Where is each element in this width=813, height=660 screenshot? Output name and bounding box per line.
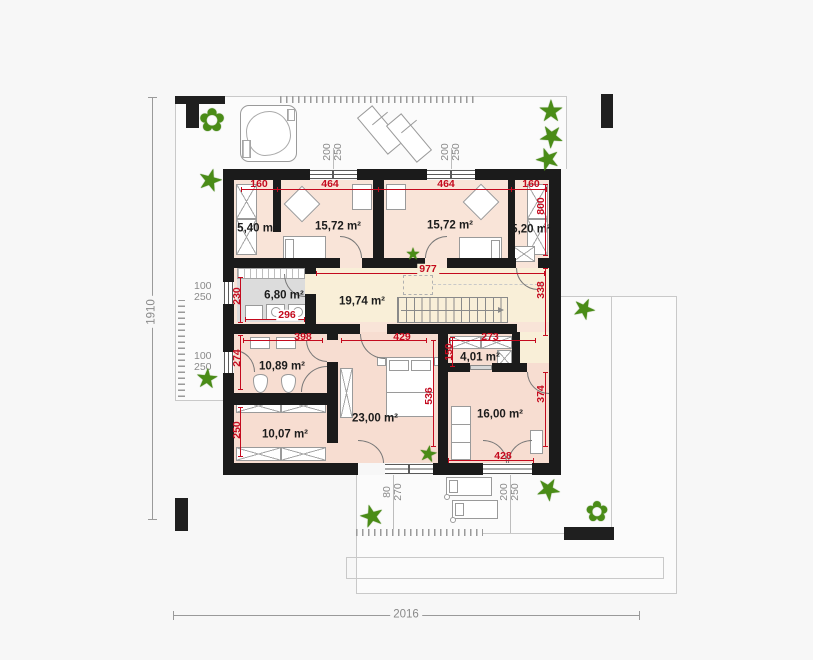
window-dim-left-1: 100 250 [194, 281, 212, 303]
wall-left-1 [223, 180, 234, 282]
wall-bottom-1 [223, 463, 358, 475]
window-bottom-mullion [408, 464, 410, 474]
dim-428: 428 [494, 451, 512, 462]
garden-pier-top-right [601, 94, 613, 128]
wall-utility-hall-top [305, 268, 316, 274]
plant-star-icon: ★ [194, 364, 220, 393]
railing-bottom-line [483, 533, 564, 534]
dim-line-800 [545, 184, 546, 256]
staircase-headroom-dashed [403, 275, 433, 295]
door-leaf-401 [470, 365, 492, 370]
hot-tub-jet [287, 109, 295, 121]
sunbed-2-pillow [455, 503, 464, 516]
window-dim-bottom-2: 200 250 [499, 483, 521, 501]
dim-line-428 [448, 460, 534, 461]
terrace-bottom-edge [356, 593, 677, 594]
wall-bedrooms-hall-1 [234, 258, 340, 268]
wall-left-2 [223, 304, 234, 352]
dim-line-374 [545, 372, 546, 447]
dim-tick [378, 187, 379, 192]
desk-1572-right [386, 184, 406, 210]
dim-464-top-left: 464 [321, 179, 339, 190]
dim-tick [511, 187, 512, 192]
dim-464-top-right: 464 [437, 179, 455, 190]
wall-bedrooms-hall-3 [447, 258, 516, 268]
plant-star-icon: ★ [405, 247, 420, 264]
bed-2300-pillow-1 [389, 360, 409, 371]
sunbed-1-pillow [449, 480, 458, 493]
room-label-540: 5,40 m² [237, 223, 277, 235]
garden-pier-bottom-left [175, 498, 188, 531]
wall-top-2 [357, 169, 427, 180]
dim-536: 536 [424, 387, 435, 405]
plant-star-icon: ★ [416, 442, 439, 467]
garden-wall-bottom-right [564, 527, 614, 540]
dim-374: 374 [536, 385, 547, 403]
dim-150: 150 [444, 343, 455, 361]
garden-wall-top-left-v [186, 96, 199, 128]
bathroom-sink-1 [250, 337, 270, 349]
railing-left [178, 300, 185, 397]
room-label-1572-left: 15,72 m² [315, 221, 361, 233]
dim-250: 250 [232, 421, 243, 439]
plant-flower-icon: ✿ [585, 498, 608, 526]
dim-2016: 2016 [390, 610, 422, 621]
wardrobe-2300 [340, 368, 353, 418]
window-dim-top-2: 200 250 [440, 143, 462, 161]
hot-tub-step [242, 140, 251, 158]
sunbed-1-wheel [444, 494, 450, 500]
dim-tick [277, 187, 278, 192]
floor-plan-canvas: 5,40 m² 15,72 m² 15,72 m² 5,20 m² 6,80 m… [0, 0, 813, 660]
floor-nook [520, 332, 549, 363]
terrace-door-1600-sill [483, 464, 532, 474]
room-label-1974: 19,74 m² [339, 296, 385, 308]
storage-1007-shelf-bottom-b [281, 447, 326, 461]
wardrobe-520-corner [513, 246, 535, 262]
dim-800: 800 [536, 197, 547, 215]
window-dim-bottom-1: 80 270 [382, 483, 404, 501]
dim-274: 274 [232, 349, 243, 367]
wall-bottom-2 [433, 463, 483, 475]
staircase-walkline [401, 310, 499, 311]
dim-338: 338 [536, 281, 547, 299]
dim-160-top-left: 160 [250, 179, 268, 190]
dim-160-top-right: 160 [522, 179, 540, 190]
utility-cabinet [245, 305, 263, 320]
dim-273: 273 [481, 332, 499, 343]
room-label-2300: 23,00 m² [352, 413, 398, 425]
storage-1007-shelf-bottom-a [236, 447, 281, 461]
wall-401-nook [512, 332, 520, 363]
dim-429: 429 [393, 332, 411, 343]
wall-bedrooms-hall-4 [538, 258, 549, 268]
staircase-arrow-icon [498, 307, 504, 313]
dim-1910: 1910 [147, 296, 158, 328]
desk-1572-left [352, 184, 372, 210]
wall-bath-bottom [234, 393, 338, 405]
room-label-401: 4,01 m² [460, 352, 500, 364]
terrace-outline-left-bottom [175, 400, 223, 401]
terrace-outline-left [175, 96, 176, 400]
room-label-1600: 16,00 m² [477, 409, 523, 421]
wall-utility-hall-bottom [305, 294, 316, 324]
terrace-inner-line [611, 296, 612, 527]
dim-230: 230 [232, 287, 243, 305]
room-label-1572-right: 15,72 m² [427, 220, 473, 232]
bed-2300-pillow-2 [411, 360, 431, 371]
room-label-680: 6,80 m² [264, 290, 304, 302]
window-dim-top-1: 200 250 [322, 143, 344, 161]
dim-296: 296 [276, 310, 298, 321]
dim-977: 977 [417, 264, 439, 275]
plant-flower-icon: ✿ [199, 104, 226, 136]
wall-401-bottom-2 [492, 363, 527, 372]
dim-line-top-chain [241, 189, 547, 190]
cabinet-1600-shelf-line2 [451, 442, 471, 443]
terrace-right-edge [676, 296, 677, 593]
wall-bath-2300-top [327, 332, 338, 340]
dim-line-429 [341, 340, 427, 341]
terrace-step [346, 557, 664, 579]
terrace-right [561, 296, 676, 593]
room-label-1007: 10,07 m² [262, 429, 308, 441]
cabinet-1600 [451, 406, 471, 460]
bed-1572-left-pillow [285, 239, 294, 260]
sunbed-2-wheel [450, 517, 456, 523]
room-label-1089: 10,89 m² [259, 361, 305, 373]
cabinet-1600-shelf-line [451, 424, 471, 425]
bathroom-sink-2 [276, 337, 296, 349]
dim-line-338 [545, 268, 546, 336]
dim-398: 398 [294, 332, 312, 343]
railing-top [280, 96, 477, 103]
